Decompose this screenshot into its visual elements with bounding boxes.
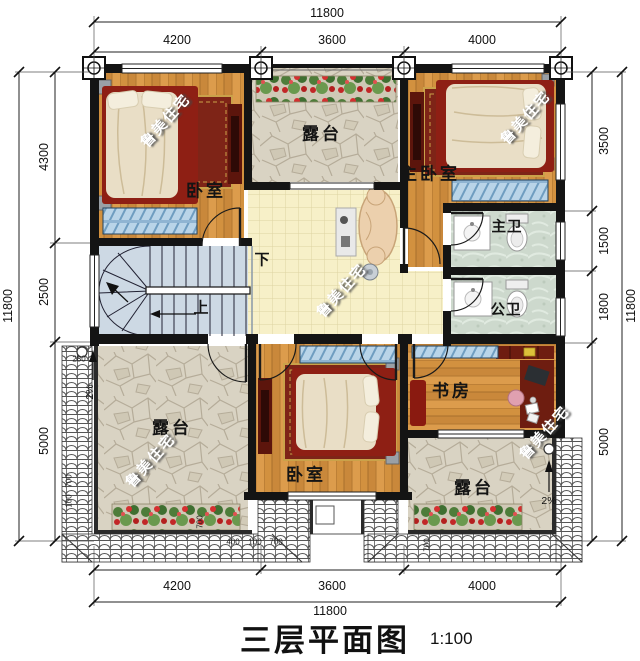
dim-porch-400: 400 <box>226 538 239 547</box>
porch-recess <box>310 500 364 534</box>
tv-screen <box>261 390 269 442</box>
floor-hall-east <box>400 271 443 334</box>
room-label-master-bath: 主卫 <box>492 216 523 237</box>
floor-plan-page: 11800 4200 3600 4000 4200 3600 4000 1180… <box>0 0 640 661</box>
dim-porch-700: 700 <box>269 538 282 547</box>
dim-gutter-700: 700 <box>65 474 74 487</box>
dim-top-seg-3: 4000 <box>468 33 496 47</box>
flower-bed-right <box>414 504 522 530</box>
room-label-public-bath: 公卫 <box>491 299 522 320</box>
dim-left-total: 11800 <box>1 289 15 323</box>
dim-parapet-700: 700 <box>196 515 205 528</box>
dim-bottom-seg-1: 4200 <box>163 579 191 593</box>
dim-right-total: 11800 <box>624 289 638 323</box>
dim-right-seg-3: 1800 <box>597 293 611 321</box>
room-label-study: 书房 <box>432 377 472 402</box>
dim-porch-100: 100 <box>248 538 261 547</box>
dim-bottom-seg-2: 3600 <box>318 579 346 593</box>
dim-gutter-100: 100 <box>65 494 74 507</box>
dim-left-seg-3: 5000 <box>37 427 51 455</box>
tv-screen <box>231 116 239 172</box>
dim-parapet-700-right: 700 <box>423 538 432 551</box>
tv-screen <box>413 104 421 160</box>
dim-top-total: 11800 <box>310 6 344 20</box>
stair-label-down: 下 <box>254 249 269 270</box>
room-label-terrace-right: 露台 <box>454 474 494 499</box>
bed-bottom <box>284 358 399 464</box>
toilet-tank-public-bath <box>506 280 528 289</box>
stair-label-up: 上 <box>193 297 208 318</box>
plan-title: 三层平面图 <box>237 615 413 661</box>
dim-right-seg-1: 3500 <box>597 127 611 155</box>
dim-top-seg-2: 3600 <box>318 33 346 47</box>
room-label-master-bedroom: 主卧室 <box>400 160 460 185</box>
dim-left-seg-2: 2500 <box>37 278 51 306</box>
dim-bottom-seg-3: 4000 <box>468 579 496 593</box>
room-label-terrace-top: 露台 <box>302 120 342 145</box>
dim-right-seg-4: 5000 <box>597 428 611 456</box>
flower-bed-top <box>256 76 396 102</box>
armchair-study <box>410 380 426 426</box>
flower-bed-left <box>112 504 240 530</box>
room-label-bedroom-top-left: 卧室 <box>186 177 226 202</box>
dim-right-seg-2: 1500 <box>597 227 611 255</box>
dim-top-seg-1: 4200 <box>163 33 191 47</box>
plan-scale: 1:100 <box>430 629 473 649</box>
dim-left-seg-1: 4300 <box>37 143 51 171</box>
room-label-bedroom-bottom: 卧室 <box>286 461 326 486</box>
dim-gutter-280: 280 <box>72 355 85 364</box>
slope-label-right: 2% <box>541 495 556 507</box>
slope-label-left: 2% <box>84 384 96 399</box>
threshold-terrace-top <box>290 183 374 189</box>
